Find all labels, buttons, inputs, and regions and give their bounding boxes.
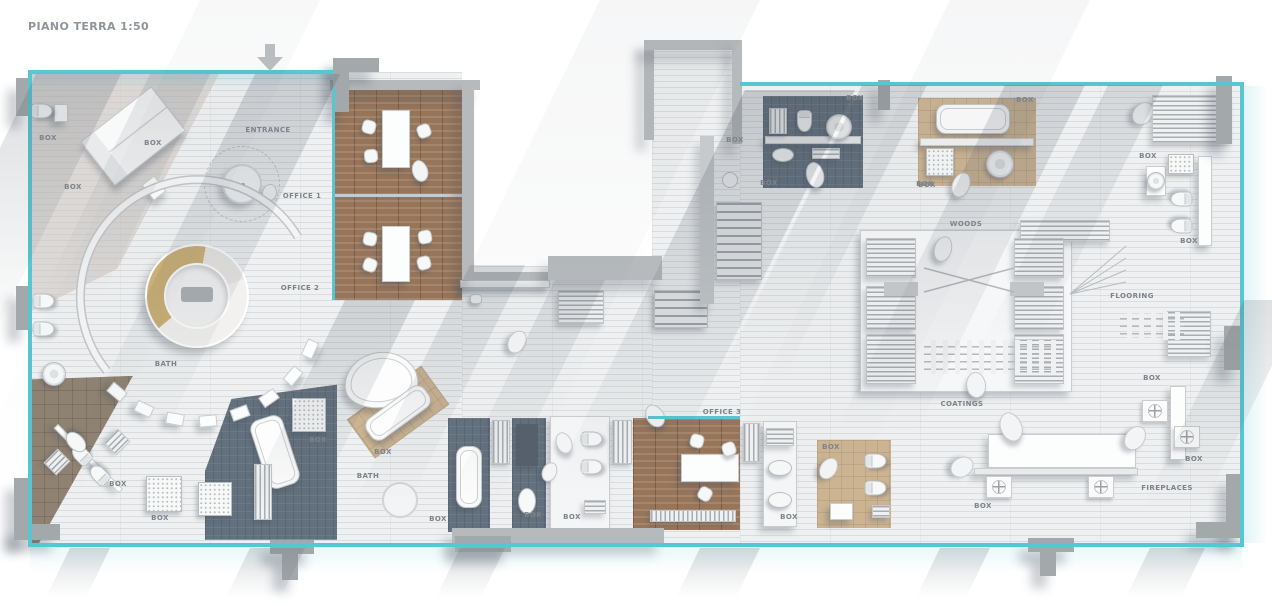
round-sink bbox=[826, 114, 852, 140]
box-label: BOX bbox=[144, 139, 162, 147]
box-label: BOX bbox=[1139, 152, 1157, 160]
shower-tray bbox=[292, 398, 326, 432]
shower-tray bbox=[926, 148, 954, 176]
room-label: OFFICE 3 bbox=[703, 408, 742, 416]
pier-bottom-3v bbox=[1040, 550, 1056, 576]
shadow-streak bbox=[433, 548, 505, 604]
toilet bbox=[581, 460, 603, 475]
shadow-streak bbox=[43, 548, 110, 604]
box-label: BOX bbox=[39, 134, 57, 142]
toilet bbox=[33, 322, 55, 337]
wall-mid-band bbox=[548, 256, 662, 280]
glass-wall-top-right bbox=[740, 82, 1242, 86]
dark-mat bbox=[516, 424, 538, 466]
toilet bbox=[1171, 219, 1193, 234]
box-label: BOX bbox=[760, 179, 778, 187]
sample-rack bbox=[866, 238, 916, 278]
box-label: BOX bbox=[846, 94, 864, 102]
toilet bbox=[31, 104, 53, 119]
divider-rack bbox=[612, 420, 632, 464]
wall-office-right bbox=[462, 80, 474, 280]
room-label: COATINGS bbox=[941, 400, 984, 408]
toilet bbox=[33, 294, 55, 309]
shower-tray bbox=[198, 482, 232, 516]
wall-tower-left bbox=[644, 40, 654, 140]
office3-glass-wall bbox=[648, 416, 740, 419]
shelf-band bbox=[650, 510, 736, 522]
bathtub bbox=[456, 446, 482, 508]
grid-shelf bbox=[766, 428, 794, 446]
office-chair bbox=[363, 148, 378, 163]
office-glass-wall bbox=[332, 88, 335, 300]
glass-wall-left bbox=[28, 70, 32, 547]
circular-display-desk bbox=[181, 287, 213, 302]
shadow-streak bbox=[673, 548, 760, 604]
striped-mat bbox=[812, 148, 840, 159]
room-label: OFFICE 1 bbox=[283, 192, 322, 200]
box-label: BOX bbox=[429, 515, 447, 523]
stool bbox=[470, 294, 482, 304]
stair-landing bbox=[722, 172, 738, 188]
floor-plan-canvas: PIANO TERRA 1:50 bbox=[0, 0, 1272, 606]
round-sink bbox=[986, 150, 1014, 178]
box-label: BOX bbox=[1180, 237, 1198, 245]
office-divider bbox=[334, 194, 462, 197]
box-label: BOX bbox=[726, 136, 744, 144]
room-label: OFFICE 2 bbox=[281, 284, 320, 292]
box-label: BOX bbox=[109, 480, 127, 488]
entrance-arrow-icon bbox=[265, 44, 275, 57]
box-label: BOX bbox=[524, 511, 542, 519]
wall-corridor bbox=[700, 136, 714, 304]
glass-wall-bottom bbox=[28, 543, 1244, 547]
sample-dash-rows bbox=[924, 340, 1056, 374]
office1-desk bbox=[382, 110, 410, 168]
fireplace-unit bbox=[1088, 476, 1114, 498]
pier-right-mid bbox=[1224, 326, 1240, 370]
box-label: BOX bbox=[563, 513, 581, 521]
pier-entrance-v bbox=[333, 58, 349, 112]
round-sink bbox=[1147, 172, 1165, 190]
room-label: BATH bbox=[357, 472, 379, 480]
wall-counter bbox=[1198, 156, 1212, 246]
fireplace-unit bbox=[1174, 426, 1200, 448]
box-label: BOX bbox=[1143, 374, 1161, 382]
bench-stool bbox=[199, 414, 218, 428]
toilet bbox=[797, 110, 812, 132]
box-label: BOX bbox=[822, 443, 840, 451]
corner-top-right bbox=[1216, 76, 1232, 144]
flooring-dash-rows bbox=[1120, 312, 1184, 340]
room-label: FLOORING bbox=[1110, 292, 1154, 300]
box-label: BOX bbox=[916, 180, 934, 188]
radiator-panel bbox=[743, 423, 760, 462]
reception-desk bbox=[222, 164, 262, 204]
rack-base-block bbox=[884, 282, 918, 296]
rack-base-block bbox=[1010, 282, 1044, 296]
toilet bbox=[581, 432, 603, 447]
entrance-arrow-head-icon bbox=[257, 57, 283, 71]
box-label: BOX bbox=[64, 183, 82, 191]
divider-rack bbox=[492, 420, 510, 464]
bathtub bbox=[936, 104, 1010, 134]
staircase bbox=[716, 202, 762, 280]
oval-sink bbox=[772, 148, 794, 162]
shelf-band bbox=[920, 138, 1034, 146]
sample-rack bbox=[1014, 238, 1064, 278]
box-label: BOX bbox=[1185, 455, 1203, 463]
corner-bottom-left-h bbox=[14, 524, 60, 540]
glass-wall-top-left bbox=[28, 70, 334, 74]
box-label: BOX bbox=[780, 513, 798, 521]
round-sink bbox=[42, 362, 66, 386]
striped-mat bbox=[872, 505, 890, 518]
fireplace-unit bbox=[1142, 400, 1168, 422]
toilet bbox=[865, 454, 887, 469]
office2-desk bbox=[382, 226, 410, 282]
pier-bottom-1v bbox=[282, 552, 298, 580]
glass-tint-right bbox=[1244, 86, 1268, 543]
room-label: FIREPLACES bbox=[1141, 484, 1193, 492]
room-label: ENTRANCE bbox=[245, 126, 290, 134]
fireplace-panel bbox=[1170, 386, 1186, 460]
radiator-panel bbox=[254, 464, 272, 520]
box-label: BOX bbox=[151, 514, 169, 522]
sample-rack bbox=[866, 334, 916, 384]
round-rug bbox=[382, 482, 418, 518]
corner-bottom-right-h bbox=[1196, 522, 1242, 538]
fireplace-unit bbox=[986, 476, 1012, 498]
box-label: BOX bbox=[1016, 96, 1034, 104]
room-label: BATH bbox=[155, 360, 177, 368]
fireplace-counter-base bbox=[974, 468, 1138, 475]
side-table bbox=[830, 503, 853, 520]
wall-tower-top bbox=[644, 40, 742, 50]
plan-title: PIANO TERRA 1:50 bbox=[28, 20, 149, 33]
oval-basin bbox=[768, 492, 792, 508]
striped-mat bbox=[584, 500, 606, 514]
towel-rack bbox=[769, 108, 787, 134]
toilet bbox=[865, 481, 887, 496]
toilet bbox=[1171, 192, 1193, 207]
box-label: BOX bbox=[309, 436, 327, 444]
shadow-streak bbox=[1123, 548, 1205, 604]
oval-basin bbox=[768, 460, 792, 476]
room-label: WOODS bbox=[950, 220, 982, 228]
side-table bbox=[54, 104, 68, 122]
shadow-streak bbox=[913, 548, 990, 604]
box-label: BOX bbox=[374, 448, 392, 456]
wall-notch bbox=[462, 272, 552, 280]
grid-shelf bbox=[1168, 154, 1194, 174]
shower-tray bbox=[146, 476, 182, 512]
wall-office-top bbox=[330, 80, 480, 90]
bench-counter bbox=[460, 280, 550, 288]
glass-wall-right bbox=[1240, 82, 1244, 547]
sample-rack bbox=[558, 290, 604, 324]
office3-desk bbox=[681, 454, 739, 482]
wall-tower-right bbox=[732, 40, 742, 144]
box-label: BOX bbox=[974, 502, 992, 510]
